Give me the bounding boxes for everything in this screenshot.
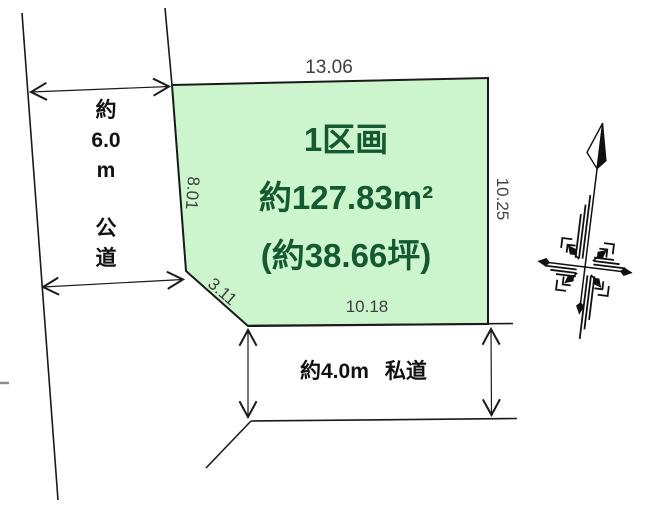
parcel-area-m2: 約127.83m²: [200, 169, 492, 227]
public-road-approx-char: 約: [96, 96, 117, 126]
private-road-label: 約4.0m 私道: [300, 360, 480, 384]
dimension-top-edge: 13.06: [303, 57, 355, 79]
private-road-bottom-line: [251, 419, 517, 422]
public-road-right-line: [165, 8, 172, 85]
public-road-left-line: [22, 13, 58, 500]
public-road-label: 約 6.0 m 公 道: [86, 96, 126, 274]
public-road-width-arrow-top: [31, 87, 169, 93]
public-road-type-char2: 道: [96, 244, 117, 274]
public-road-type-char1: 公: [96, 214, 117, 244]
private-road-width: 約4.0m: [300, 360, 369, 384]
public-road-width-unit: m: [97, 156, 116, 186]
dimension-left-edge: 8.01: [181, 172, 204, 213]
dimension-right-edge: 10.25: [492, 175, 512, 223]
neighbor-boundary-line: [206, 421, 251, 468]
parcel-area-tsubo: (約38.66坪): [200, 227, 492, 285]
parcel-name: 1区画: [200, 111, 492, 169]
public-road-width-value: 6.0: [91, 126, 120, 156]
parcel-title-block: 1区画 約127.83m² (約38.66坪): [200, 111, 492, 285]
dimension-bottom-edge: 10.18: [337, 297, 397, 317]
land-plot-diagram: 1区画 約127.83m² (約38.66坪) 13.06 8.01 10.25…: [0, 0, 655, 514]
private-road-type: 私道: [385, 360, 427, 384]
private-road-lines: [206, 324, 517, 469]
north-compass-icon: [530, 117, 650, 344]
public-road-width-arrow-bottom: [43, 280, 183, 288]
private-road-width-arrow-right: [491, 329, 492, 415]
